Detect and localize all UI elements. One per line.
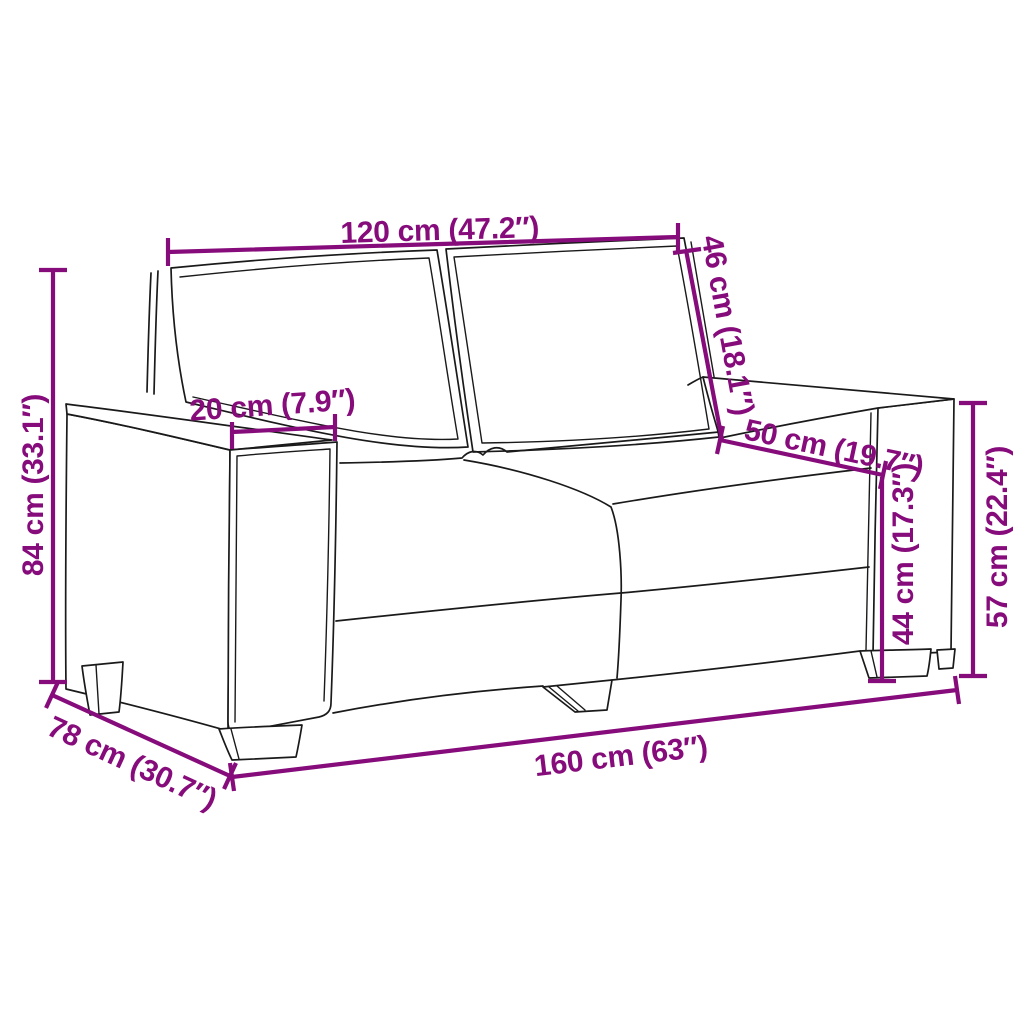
sofa-leg-back-left xyxy=(82,662,123,715)
label-armrest-height: 57 cm (22.4″) xyxy=(981,446,1014,628)
sofa-dimension-svg: 120 cm (47.2″) 46 cm (18.1″) 20 cm (7.9″… xyxy=(0,0,1024,1024)
label-seat-height: 44 cm (17.3″) xyxy=(887,463,920,645)
diagram-canvas: 120 cm (47.2″) 46 cm (18.1″) 20 cm (7.9″… xyxy=(0,0,1024,1024)
sofa-back-cushion-right xyxy=(446,238,719,452)
sofa-armrest-left-front-face xyxy=(228,442,337,733)
sofa-leg-front-right xyxy=(860,649,931,678)
label-overall-height: 84 cm (33.1″) xyxy=(17,394,50,576)
sofa-leg-back-right xyxy=(937,649,955,669)
label-backrest-width: 120 cm (47.2″) xyxy=(340,211,540,250)
